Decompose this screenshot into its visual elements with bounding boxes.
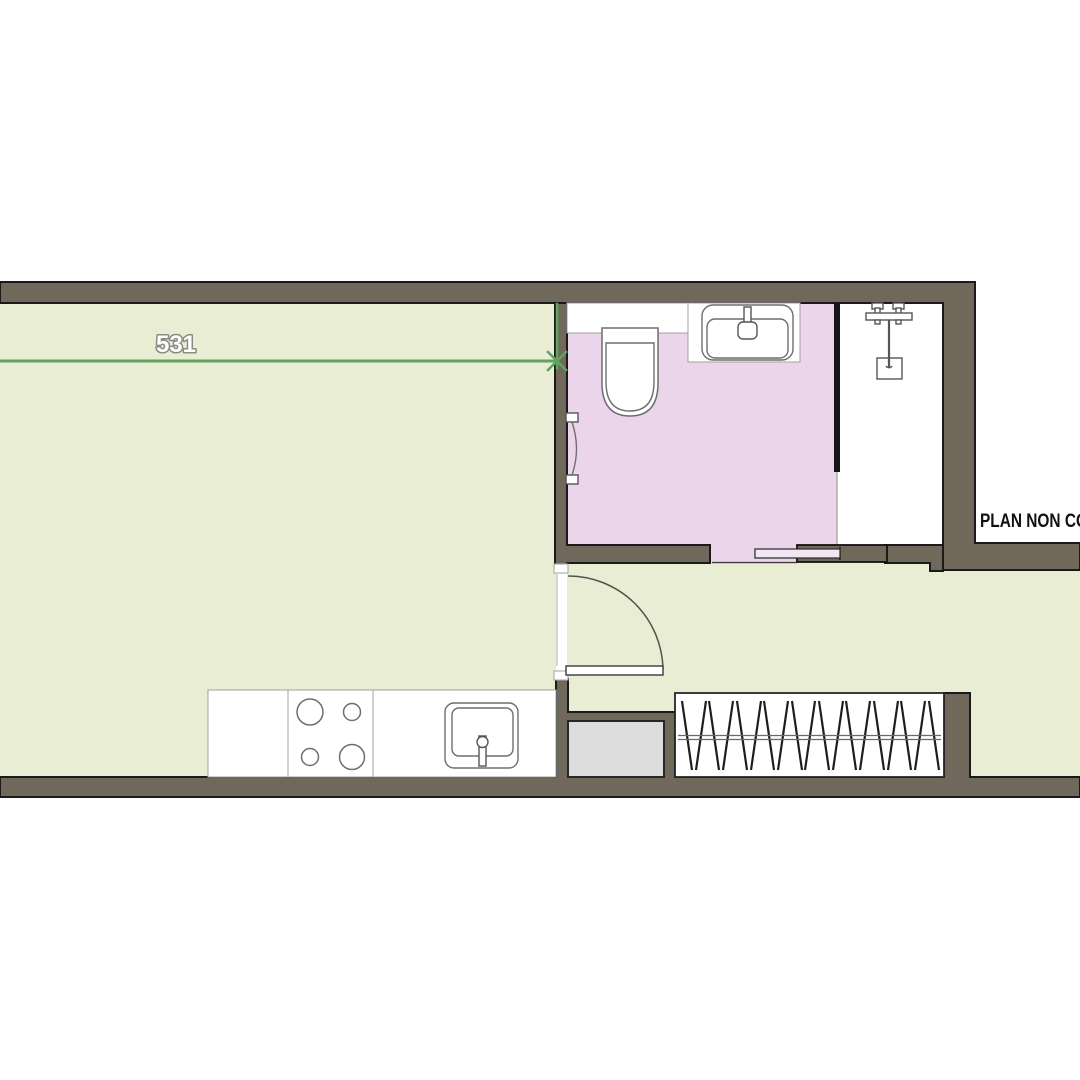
towel-radiator-bracket-top [566, 413, 578, 422]
plan-note-text: PLAN NON CO [980, 511, 1080, 532]
dimension-label: 531 [156, 331, 196, 358]
shower-mixer-tick-left [875, 320, 880, 324]
burner-small-bottom-left [302, 749, 319, 766]
burner-small-top-right [344, 704, 361, 721]
shower-mixer-bar [866, 313, 912, 320]
floor-plan: 531 PLAN NON CO [0, 0, 1080, 1080]
door-jamb-top [554, 564, 568, 573]
door-leaf [566, 666, 663, 675]
floor-plan-canvas: 531 PLAN NON CO [0, 0, 1080, 1080]
sliding-door-leaf [755, 549, 840, 558]
appliance-box [568, 721, 664, 777]
shower-mixer-tick-right [896, 320, 901, 324]
burner-large-top-left [297, 699, 323, 725]
kitchen-fixtures [208, 690, 556, 777]
shower-partition-glass [834, 303, 840, 472]
kitchen-faucet-knob [477, 737, 488, 748]
vanity-faucet-knob [738, 322, 757, 339]
burner-large-bottom-right [340, 745, 365, 770]
towel-radiator-bracket-bottom [566, 475, 578, 484]
